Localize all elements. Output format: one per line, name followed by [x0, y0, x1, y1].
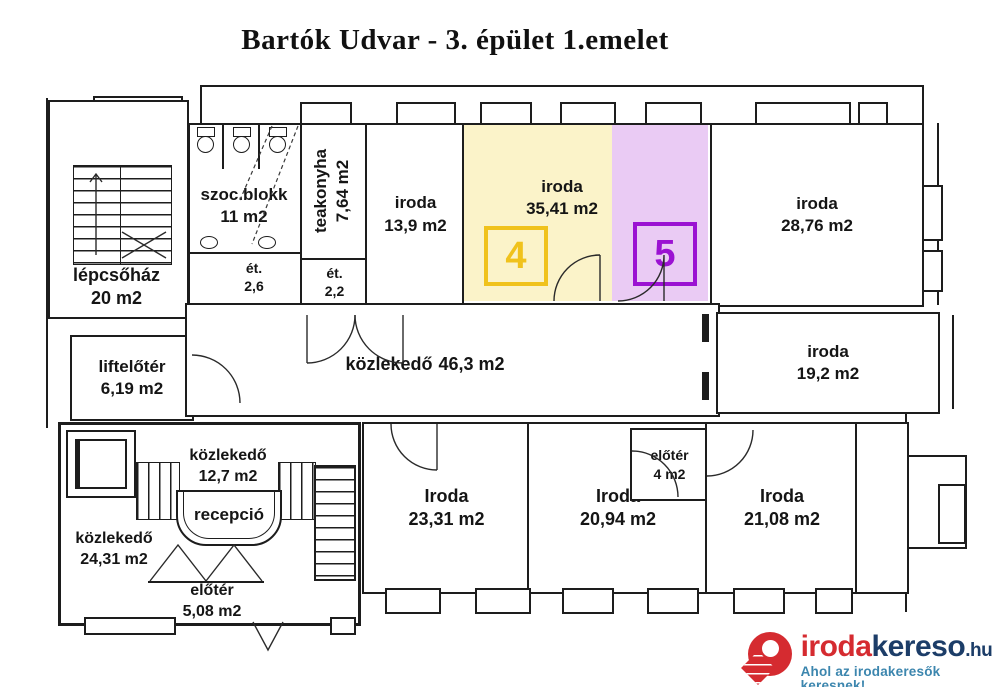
logo-text: irodakereso.hu Ahol az irodakeresők kere… — [801, 632, 1003, 687]
wall-niche — [702, 372, 709, 400]
entrance-door-mark — [253, 622, 283, 650]
sink-icon — [258, 236, 276, 249]
room-iroda-23-31: Iroda 23,31 m2 — [362, 422, 531, 594]
label-kozlekedo-24-31: közlekedő 24,31 m2 — [60, 526, 168, 574]
stall-partition — [258, 125, 260, 169]
irodakereso-logo: irodakereso.hu Ahol az irodakeresők kere… — [746, 632, 1003, 687]
partition — [188, 252, 300, 254]
label-lepcsohaz: lépcsőház 20 m2 — [50, 262, 183, 312]
window — [562, 588, 614, 614]
window — [84, 617, 176, 635]
logo-wordmark: irodakereso.hu — [801, 632, 1003, 662]
bay-window — [938, 315, 954, 409]
window — [733, 588, 785, 614]
room-iroda-13-9: iroda 13,9 m2 — [365, 123, 466, 306]
label-szocblokk: szoc.blokk 11 m2 — [190, 182, 298, 230]
stairs-flight-left — [73, 165, 122, 265]
window — [385, 588, 441, 614]
elevator-car — [75, 439, 127, 489]
window — [330, 617, 356, 635]
room-etkezo-tea: ét. 2,2 — [300, 258, 369, 306]
room-iroda-21-08: Iroda 21,08 m2 — [705, 422, 859, 594]
bay-window — [938, 484, 966, 544]
label-kozlekedo-46-3: közlekedő 46,3 m2 — [250, 345, 600, 385]
floor-plan-page: Bartók Udvar - 3. épület 1.emelet lépcső… — [0, 0, 1003, 687]
toilet-icon — [233, 136, 250, 153]
stairs-flight-lower — [314, 465, 356, 581]
room-unlabeled — [855, 422, 909, 594]
elevator — [66, 430, 136, 498]
logo-tagline: Ahol az irodakeresők keresnek! — [801, 665, 1003, 687]
page-title: Bartók Udvar - 3. épület 1.emelet — [130, 24, 780, 57]
window — [647, 588, 699, 614]
reception-desk: recepció — [176, 490, 282, 546]
room-iroda-19-2: iroda 19,2 m2 — [716, 312, 940, 414]
stairs-flight-right — [120, 165, 172, 265]
wall-niche — [702, 314, 709, 342]
sink-icon — [200, 236, 218, 249]
room-iroda-28-76: iroda 28,76 m2 — [710, 123, 924, 307]
unit-4-badge: 4 — [484, 226, 548, 286]
logo-ring-hole — [762, 640, 779, 657]
room-eloter-4: előtér 4 m2 — [630, 428, 709, 501]
label-etkezo-szoc: ét. 2,6 — [210, 256, 298, 298]
toilet-icon — [269, 136, 286, 153]
label-recepcio: recepció — [183, 492, 275, 539]
unit-5-badge: 5 — [633, 222, 697, 286]
label-eloter-5-08: előtér 5,08 m2 — [164, 582, 260, 622]
room-liftelooter: liftelőtér 6,19 m2 — [70, 335, 194, 421]
window — [475, 588, 531, 614]
toilet-icon — [197, 136, 214, 153]
irodakereso-logo-icon — [746, 632, 793, 680]
label-iroda-35-41: iroda 35,41 m2 — [492, 172, 632, 224]
label-kozlekedo-12-7: közlekedő 12,7 m2 — [172, 444, 284, 490]
stall-partition — [222, 125, 224, 169]
window — [815, 588, 853, 614]
